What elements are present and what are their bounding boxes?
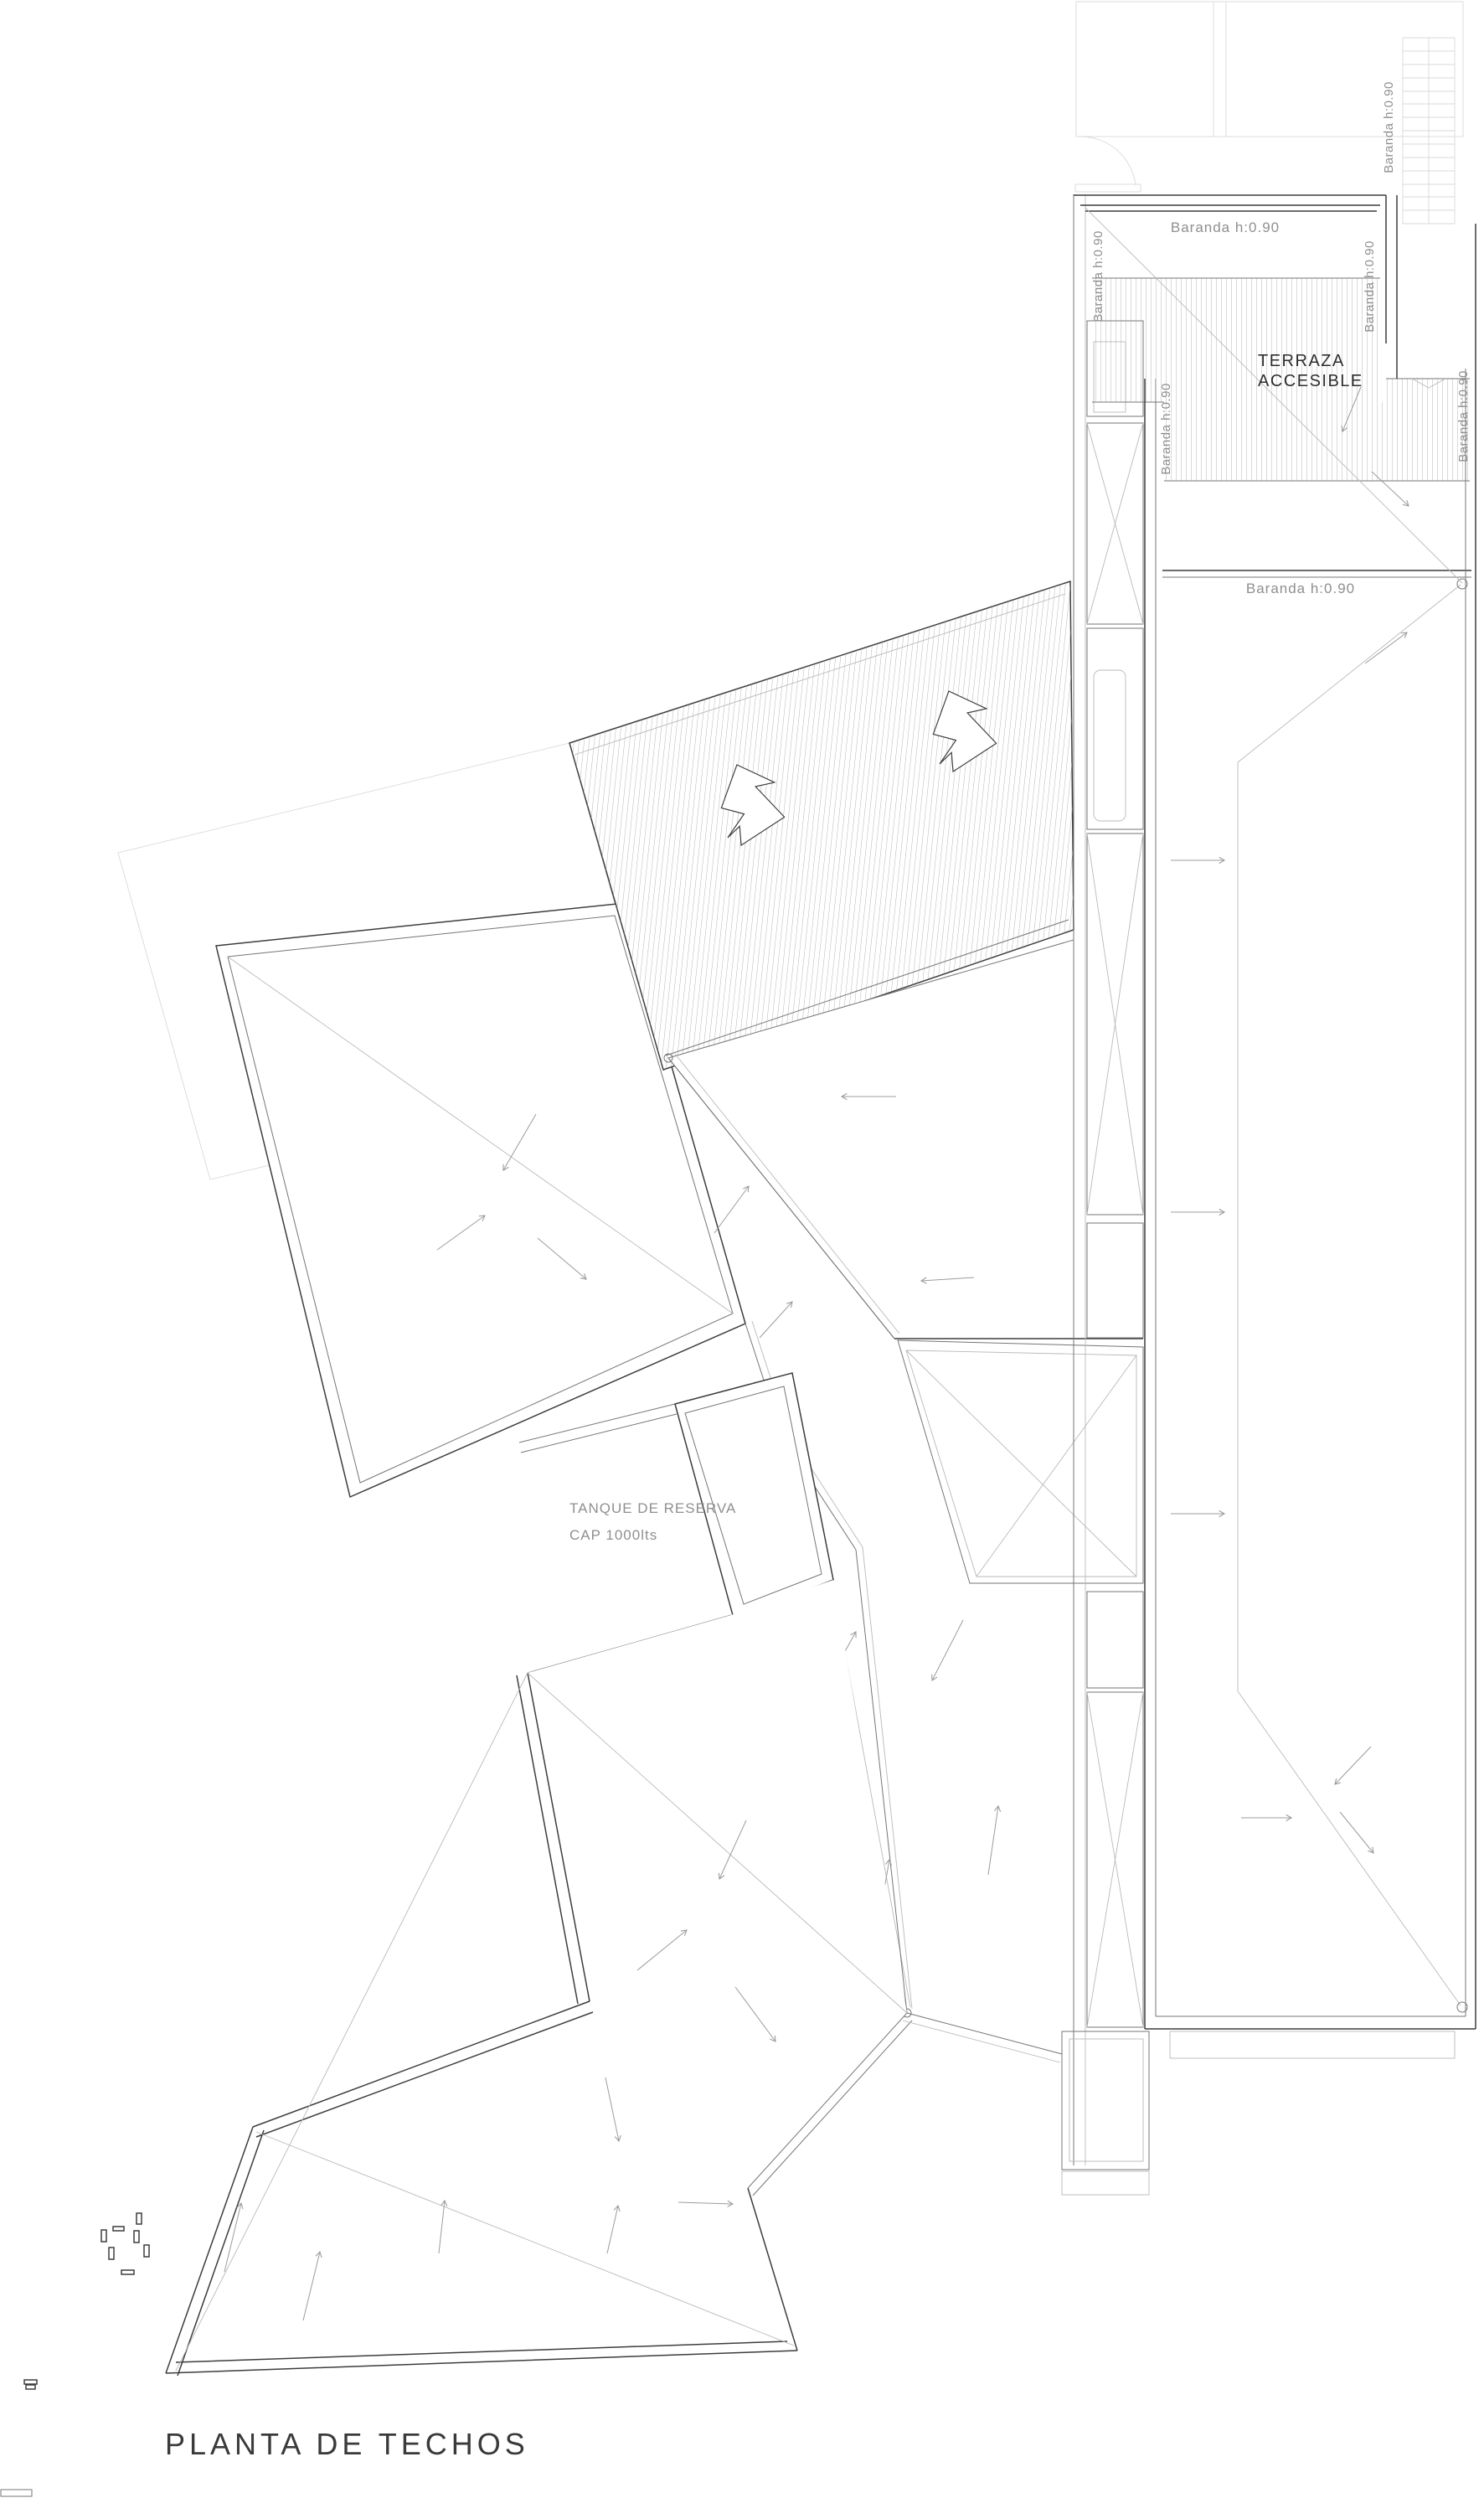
tank-label-line2: CAP 1000lts bbox=[569, 1527, 657, 1543]
right-roof: Baranda h:0.90 Baranda h:0.90 Baranda h:… bbox=[1092, 224, 1476, 2058]
drawing-title: PLANTA DE TECHOS bbox=[165, 2427, 529, 2461]
terrace-border-right bbox=[1386, 195, 1397, 379]
corridor-end-landing bbox=[1062, 2031, 1149, 2195]
paver-symbol bbox=[113, 2227, 124, 2231]
roof-plan-drawing: TANQUE DE RESERVA CAP 1000lts bbox=[0, 0, 1484, 2498]
corridor bbox=[1062, 194, 1149, 2195]
terrace-label-line2: ACCESIBLE bbox=[1258, 372, 1363, 390]
slope-arrow bbox=[1340, 1812, 1373, 1853]
landing-inner bbox=[1069, 2039, 1143, 2161]
paver-symbol bbox=[101, 2230, 106, 2242]
railing-label-vertical: Baranda h:0.90 bbox=[1091, 230, 1105, 323]
railing-label-vertical: Baranda h:0.90 bbox=[1382, 81, 1396, 173]
lower-eave-band bbox=[1170, 2031, 1455, 2058]
roof-plan-sheet: TANQUE DE RESERVA CAP 1000lts bbox=[0, 0, 1484, 2498]
slope-arrow bbox=[760, 1302, 792, 1338]
door-leaf bbox=[1075, 184, 1141, 192]
deck-hatch bbox=[1164, 402, 1386, 481]
railing-label-vertical: Baranda h:0.90 bbox=[1456, 370, 1471, 462]
corridor-box bbox=[1087, 1592, 1143, 1688]
landing-step bbox=[1062, 2171, 1149, 2195]
slope-arrow bbox=[988, 1806, 998, 1875]
railing-label: Baranda h:0.90 bbox=[1171, 219, 1280, 235]
stairs-grid bbox=[1403, 38, 1455, 224]
roof-hip bbox=[1238, 585, 1461, 762]
corridor-boxes bbox=[1087, 321, 1143, 2027]
lower-middle-roof bbox=[903, 1620, 1062, 2062]
railing-label: Baranda h:0.90 bbox=[1246, 581, 1355, 596]
terrace-border-top bbox=[1074, 195, 1386, 211]
paver-symbol bbox=[144, 2245, 149, 2257]
bottom-roof-fill bbox=[166, 1580, 907, 2373]
door-swing-arc bbox=[1080, 137, 1136, 185]
edge bbox=[907, 2013, 1062, 2054]
slope-arrows bbox=[1171, 632, 1407, 1853]
terrace-label-line1: TERRAZA bbox=[1258, 352, 1345, 370]
planter-box bbox=[1087, 628, 1143, 829]
roof-hip bbox=[1238, 1691, 1461, 2005]
corridor-box bbox=[1087, 1223, 1143, 1338]
bottom-roof bbox=[166, 1580, 912, 2376]
slope-arrow bbox=[1365, 632, 1407, 663]
paver-symbol bbox=[134, 2231, 139, 2243]
bench-symbol bbox=[24, 2380, 37, 2384]
shaft-trapezoid bbox=[898, 1340, 1143, 1583]
bench-symbol bbox=[26, 2385, 35, 2389]
slope-arrow bbox=[1335, 1747, 1371, 1784]
site-symbols bbox=[1, 2213, 149, 2496]
slope-arrows bbox=[932, 1620, 998, 1875]
tank-label-line1: TANQUE DE RESERVA bbox=[569, 1500, 736, 1516]
edge-symbol bbox=[1, 2490, 32, 2496]
paver-symbol bbox=[109, 2248, 114, 2259]
paver-symbol bbox=[121, 2270, 134, 2274]
slope-arrow bbox=[932, 1620, 963, 1680]
landing-outer bbox=[1062, 2031, 1149, 2170]
edge bbox=[903, 2021, 1060, 2062]
paver-symbol bbox=[137, 2213, 142, 2224]
railing-label-vertical: Baranda h:0.90 bbox=[1363, 240, 1377, 333]
slope-arrow bbox=[714, 1186, 749, 1233]
